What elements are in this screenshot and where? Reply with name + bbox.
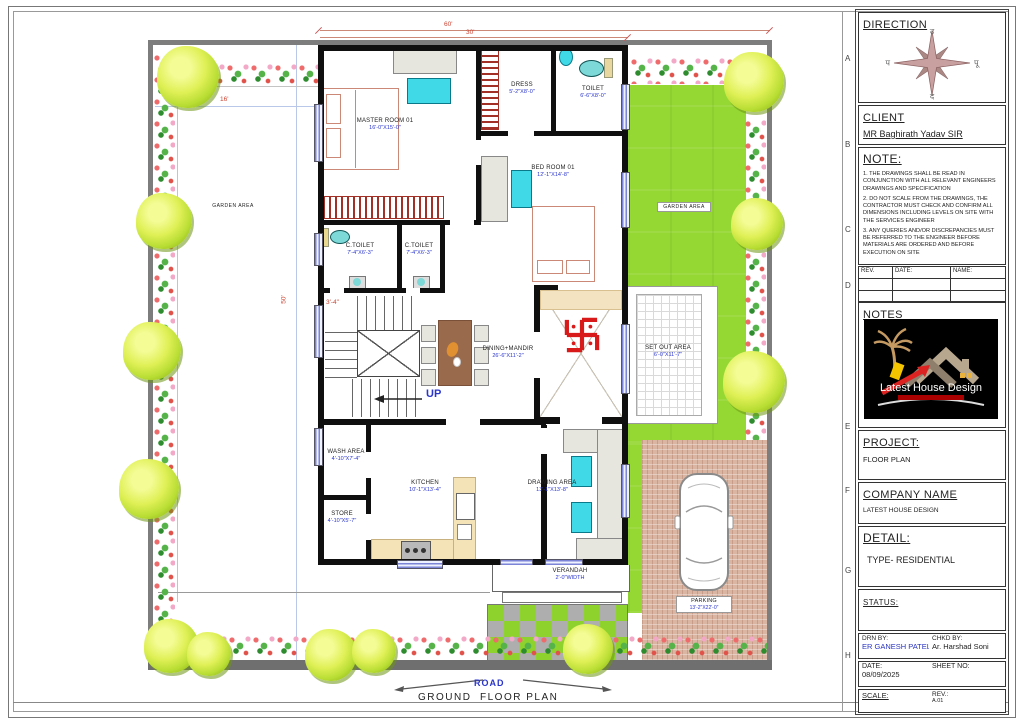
window — [397, 560, 443, 569]
room-label-ctoilet1: C.TOILET 7'-4"X6'-3" — [335, 243, 385, 257]
door-opening — [330, 288, 344, 293]
grid-ref: D — [845, 281, 851, 290]
wardrobe — [322, 196, 444, 219]
room-label-setout: SET OUT AREA 6'-0"X11'-7" — [637, 345, 699, 359]
window — [314, 104, 323, 162]
detail-box: DETAIL: TYPE- RESIDENTIAL — [858, 526, 1006, 587]
rev-header: REV. — [859, 267, 893, 279]
wall — [551, 45, 556, 135]
room-name: BED ROOM 01 — [513, 165, 593, 172]
room-name: DINING+MANDIR — [473, 346, 543, 353]
client-name: MR Baghirath Yadav SIR — [863, 129, 1001, 139]
detail-title: DETAIL: — [863, 531, 910, 545]
company-box: COMPANY NAME LATEST HOUSE DESIGN — [858, 482, 1006, 524]
rev-header: NAME: — [951, 267, 1005, 279]
window — [314, 305, 323, 358]
dimension-line — [320, 37, 628, 38]
rev-value: A.01 — [932, 698, 1002, 704]
up-label: UP — [426, 388, 441, 400]
room-size: 26'-6"X11'-2" — [473, 353, 543, 360]
project-value: FLOOR PLAN — [863, 455, 1001, 464]
direction-box: DIRECTION उ पू प द — [858, 12, 1006, 103]
wall — [476, 45, 481, 140]
status-box: STATUS: — [858, 589, 1006, 631]
road-label: ROAD — [474, 678, 505, 688]
window — [621, 84, 630, 130]
scale-box: SCALE: — [858, 689, 930, 713]
grid-ref: B — [845, 140, 850, 149]
burner — [413, 548, 418, 553]
door-opening — [541, 428, 547, 454]
room-name: DRESS — [497, 82, 547, 89]
note-box: NOTE: 1. THE DRAWINGS SHALL BE READ IN C… — [858, 147, 1006, 265]
tree — [724, 52, 784, 112]
note-item: 3. ANY QUERIES AND/OR DISCREPANCIES MUST… — [863, 228, 1001, 257]
detail-value: TYPE- RESIDENTIAL — [867, 555, 1001, 565]
room-name: SET OUT AREA — [637, 345, 699, 352]
up-arrow-icon — [372, 392, 424, 406]
wall — [476, 131, 628, 136]
room-label-master: MASTER ROOM 01 16'-0"X15'-0" — [340, 118, 430, 132]
room-name: DRAWING AREA — [517, 480, 587, 487]
room-name: C.TOILET — [394, 243, 444, 250]
room-size: 6'-6"X8'-0" — [568, 93, 618, 100]
client-box: CLIENT MR Baghirath Yadav SIR — [858, 105, 1006, 145]
sofa — [481, 156, 508, 222]
room-name: TOILET — [568, 86, 618, 93]
dining-chair — [474, 369, 489, 386]
side-table — [571, 502, 592, 533]
plot-bottom-wall — [148, 660, 772, 670]
garden-left-label: GARDEN AREA — [203, 203, 263, 209]
pillow — [537, 260, 563, 274]
mandir-shelf — [540, 290, 622, 310]
tree — [187, 632, 231, 676]
room-size: 13'-2"X22'-0" — [679, 605, 729, 611]
fridge — [456, 493, 475, 520]
note-item: 2. DO NOT SCALE FROM THE DRAWINGS, THE C… — [863, 196, 1001, 225]
grid-ref: A — [845, 54, 850, 63]
dim-house-width: 30' — [466, 29, 474, 36]
room-size: 12'-1"X14'-8" — [513, 172, 593, 179]
grid-ref-line — [842, 12, 843, 712]
room-label-drawing: DRAWING AREA 13'-1"X13'-8" — [517, 480, 587, 494]
company-title: COMPANY NAME — [863, 489, 957, 501]
sink — [457, 524, 472, 540]
tree — [136, 193, 192, 249]
dining-chair — [474, 325, 489, 342]
stair-treads — [357, 296, 420, 330]
drn-by-box: DRN BY: ER GANESH PATEL — [858, 633, 930, 659]
rug — [407, 78, 451, 104]
dining-chair — [421, 369, 436, 386]
wall — [534, 288, 540, 332]
room-label-dress: DRESS 5'-2"X8'-0" — [497, 82, 547, 96]
wall — [318, 45, 628, 51]
room-size: 4'-10"X7'-4" — [316, 456, 376, 463]
stair-treads — [325, 330, 357, 378]
room-size: 4'-10"X5'-7" — [312, 518, 372, 525]
dim-stair: 3'-4" — [326, 299, 339, 306]
room-name: GARDEN AREA — [203, 203, 263, 209]
status-title: STATUS: — [863, 598, 898, 607]
chkd-by-box: CHKD BY: Ar. Harshad Soni — [929, 633, 1006, 659]
project-title: PROJECT: — [863, 437, 919, 449]
toilet-bowl — [579, 60, 604, 77]
plan-caption: GROUND FLOOR PLAN — [418, 692, 558, 703]
room-size: 6'-0"X11'-7" — [637, 352, 699, 359]
chkd-by-value: Ar. Harshad Soni — [932, 642, 1002, 651]
company-logo: Latest House Design — [864, 319, 998, 419]
sofa — [393, 48, 457, 74]
revision-table: REV. DATE: NAME: — [858, 266, 1006, 302]
swastika-symbol — [561, 314, 603, 356]
room-label-toilet: TOILET 6'-6"X8'-0" — [568, 86, 618, 100]
tree — [119, 459, 179, 519]
notes-box: NOTES Latest House Design — [858, 302, 1006, 428]
pillow — [326, 94, 341, 124]
rev-header: DATE: — [893, 267, 951, 279]
sheet-no-label: SHEET NO: — [932, 663, 1002, 670]
grid-ref: G — [845, 566, 851, 575]
tree — [723, 351, 785, 413]
scale-label: SCALE: — [862, 691, 926, 700]
room-label-wash: WASH AREA 4'-10"X7'-4" — [316, 449, 376, 463]
company-value: LATEST HOUSE DESIGN — [863, 507, 1001, 514]
drawing-sheet: 16' 50' 3'-4" — [0, 0, 1024, 724]
room-size: 16'-0"X15'-0" — [340, 125, 430, 132]
burner — [421, 548, 426, 553]
compass-rose-icon: उ पू प द — [877, 25, 987, 101]
room-label-store: STORE 4'-10"X5'-7" — [312, 511, 372, 525]
note-item: 1. THE DRAWINGS SHALL BE READ IN CONJUNC… — [863, 171, 1001, 193]
room-name: GARDEN AREA — [660, 204, 708, 210]
room-name: MASTER ROOM 01 — [340, 118, 430, 125]
grid-ref: F — [845, 486, 850, 495]
wall — [602, 417, 628, 424]
rev-cell — [859, 279, 893, 291]
room-size: 2'-0"WIDTH — [535, 575, 605, 582]
verandah-step — [502, 592, 622, 603]
dining-chair — [421, 347, 436, 364]
tree — [731, 198, 783, 250]
pillow — [566, 260, 590, 274]
rev-cell — [951, 279, 1005, 291]
garden-right-label: GARDEN AREA — [657, 202, 711, 212]
tree — [123, 322, 181, 380]
room-name: PARKING — [679, 598, 729, 605]
rev-box: REV.: A.01 — [929, 689, 1006, 713]
dim-plot-width: 60' — [444, 21, 452, 28]
door-opening — [508, 131, 534, 136]
wall — [476, 165, 481, 222]
window — [621, 172, 630, 228]
room-size: 10'-1"X13'-4" — [390, 487, 460, 494]
rev-label: REV.: — [932, 691, 1002, 698]
grid-ref: C — [845, 225, 851, 234]
room-label-dining: DINING+MANDIR 26'-6"X11'-2" — [473, 346, 543, 360]
door-opening — [450, 220, 474, 225]
room-name: C.TOILET — [335, 243, 385, 250]
window — [621, 324, 630, 394]
food-plate — [453, 357, 461, 367]
drn-by-value: ER GANESH PATEL — [862, 642, 926, 651]
door-opening — [446, 419, 480, 425]
drn-by-label: DRN BY: — [862, 635, 926, 642]
stair-void — [357, 330, 420, 377]
compass-north: उ — [930, 27, 935, 36]
toilet-bowl — [330, 230, 350, 244]
project-box: PROJECT: FLOOR PLAN — [858, 430, 1006, 480]
grid-ref: E — [845, 422, 850, 431]
window — [314, 233, 323, 266]
logo-text: Latest House Design — [880, 382, 982, 394]
room-size: 13'-1"X13'-8" — [517, 487, 587, 494]
wall — [534, 417, 560, 424]
room-size: 5'-2"X8'-0" — [497, 89, 547, 96]
room-label-kitchen: KITCHEN 10'-1"X13'-4" — [390, 480, 460, 494]
room-label-verandah: VERANDAH 2'-0"WIDTH — [535, 568, 605, 582]
date-value: 08/09/2025 — [862, 670, 926, 679]
wall — [318, 495, 370, 500]
door-opening — [406, 288, 420, 293]
room-size: 7'-4"X6'-3" — [394, 250, 444, 257]
chkd-by-label: CHKD BY: — [932, 635, 1002, 642]
note-title: NOTE: — [863, 152, 902, 166]
compass-east: पू — [974, 59, 981, 69]
date-box: DATE: 08/09/2025 — [858, 661, 930, 687]
sheet-no-box: SHEET NO: — [929, 661, 1006, 687]
room-name: KITCHEN — [390, 480, 460, 487]
sink-basin — [353, 278, 361, 286]
compass-west: प — [885, 59, 890, 68]
client-title: CLIENT — [863, 112, 905, 124]
room-label-bedroom: BED ROOM 01 12'-1"X14'-8" — [513, 165, 593, 179]
tree — [563, 624, 613, 674]
room-name: STORE — [312, 511, 372, 518]
room-label-ctoilet2: C.TOILET 7'-4"X6'-3" — [394, 243, 444, 257]
room-size: 7'-4"X6'-3" — [335, 250, 385, 257]
tree — [305, 629, 357, 681]
date-label: DATE: — [862, 663, 926, 670]
dimension-line — [320, 30, 770, 31]
tree — [157, 46, 219, 108]
toilet-tank — [604, 58, 613, 78]
pillow — [326, 128, 341, 158]
tree — [352, 629, 396, 673]
grid-ref: H — [845, 651, 851, 660]
room-name: VERANDAH — [535, 568, 605, 575]
window — [621, 464, 630, 518]
rev-cell — [893, 279, 951, 291]
sink-basin — [417, 278, 425, 286]
compass-south: द — [930, 92, 935, 101]
burner — [405, 548, 410, 553]
room-label-parking: PARKING 13'-2"X22'-0" — [676, 596, 732, 613]
wall — [318, 419, 546, 425]
dining-chair — [421, 325, 436, 342]
room-name: WASH AREA — [316, 449, 376, 456]
